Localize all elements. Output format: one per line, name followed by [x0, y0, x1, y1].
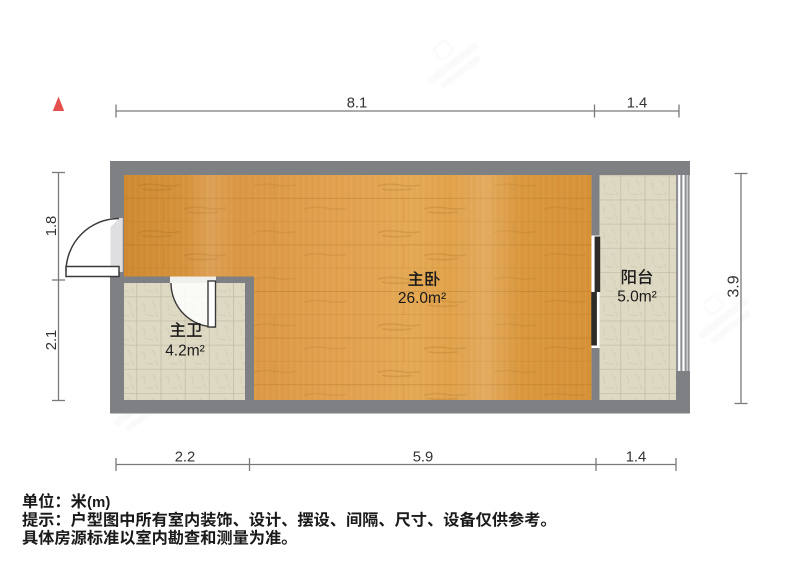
svg-text:(m): (m)	[87, 494, 110, 511]
svg-text:1.4: 1.4	[626, 450, 647, 466]
svg-text:3.9: 3.9	[726, 275, 743, 297]
svg-text:5.0m²: 5.0m²	[617, 289, 657, 306]
svg-text:26.0m²: 26.0m²	[398, 290, 446, 307]
svg-text:1.8: 1.8	[44, 216, 60, 237]
svg-text:5.9: 5.9	[413, 450, 434, 466]
svg-text:2.2: 2.2	[175, 450, 196, 466]
svg-text:8.1: 8.1	[347, 96, 368, 112]
svg-text:2.1: 2.1	[44, 330, 60, 351]
svg-text:1.4: 1.4	[627, 96, 648, 112]
svg-text:4.2m²: 4.2m²	[165, 343, 205, 360]
